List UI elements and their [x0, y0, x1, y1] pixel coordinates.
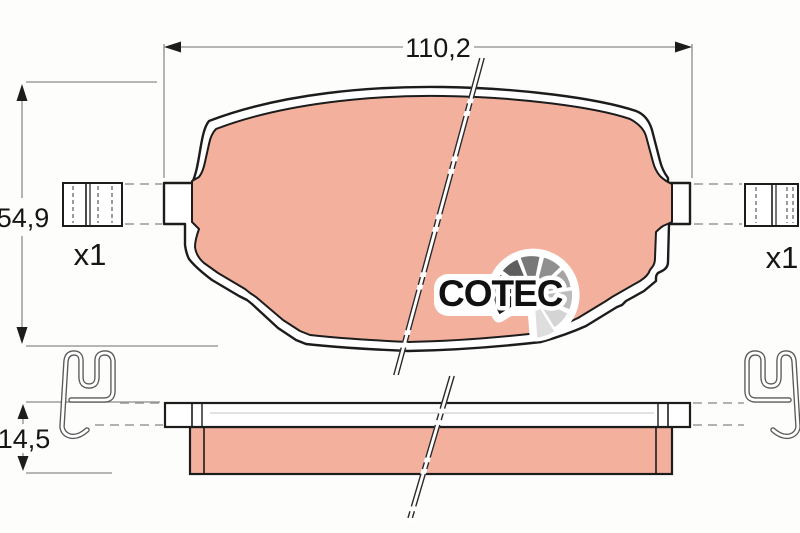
arrowhead-left	[164, 42, 181, 53]
arrowhead-down	[18, 456, 29, 471]
side-backing-plate	[165, 403, 690, 427]
dim-height-value: 54,9	[0, 203, 49, 233]
arrowhead-up	[17, 84, 28, 101]
pad-top-view	[164, 87, 690, 351]
dim-thickness-value: 14,5	[0, 424, 50, 454]
arrowhead-down	[17, 327, 28, 344]
spring-clip-left	[62, 353, 113, 436]
brake-pad-diagram: 110,2 54,9 14,5	[0, 0, 800, 533]
cotec-wordmark: COTEC	[438, 273, 563, 314]
wear-indicator-right	[745, 184, 798, 226]
dim-width-value: 110,2	[405, 33, 471, 63]
qty-label-right: x1	[766, 240, 799, 275]
friction-material	[192, 96, 672, 342]
arrowhead-right	[675, 42, 692, 53]
drawing-canvas: 110,2 54,9 14,5	[0, 0, 800, 533]
wear-indicator-left	[63, 183, 122, 226]
arrowhead-up	[18, 404, 29, 419]
qty-label-left: x1	[74, 237, 107, 272]
spring-clip-right	[747, 353, 798, 436]
